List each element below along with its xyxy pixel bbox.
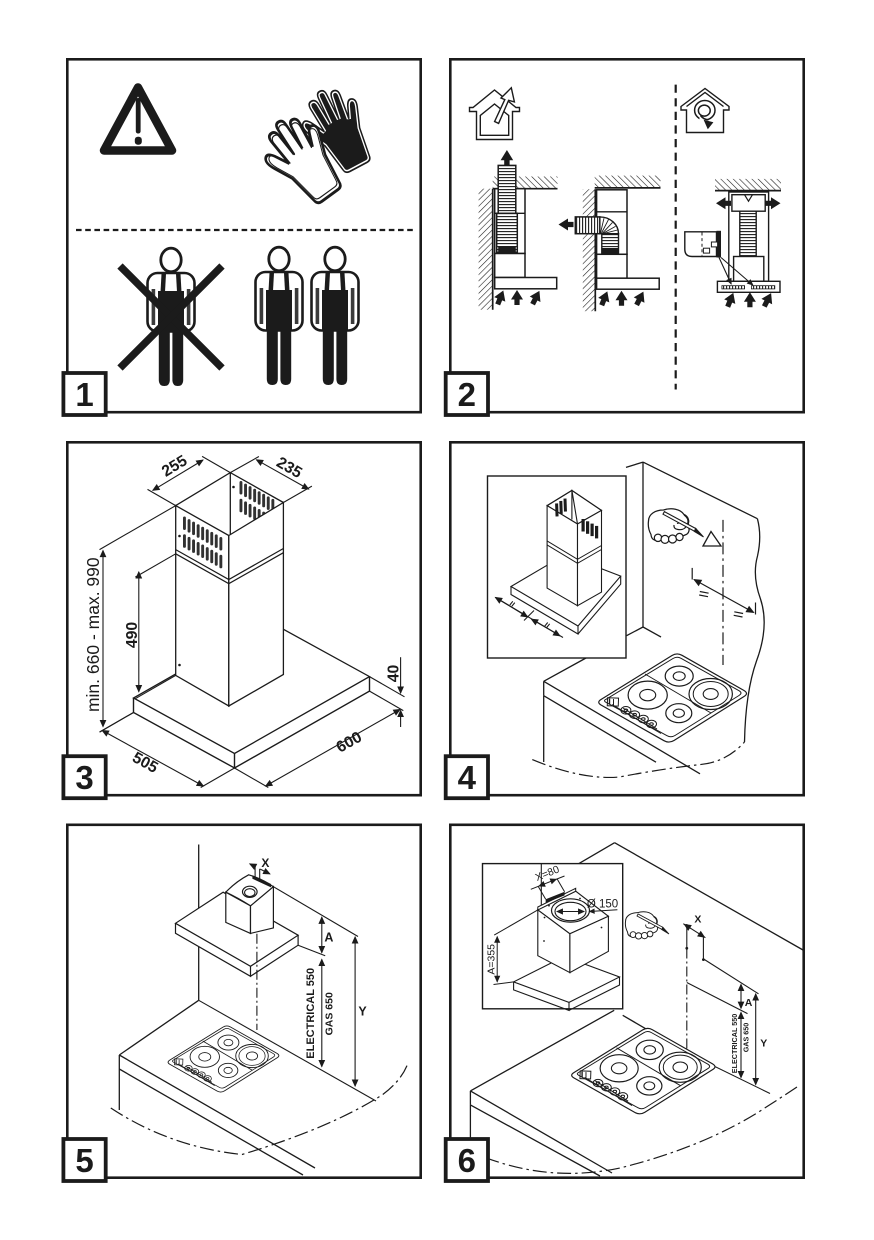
svg-text:1: 1 [75,376,93,413]
svg-text:min. 660 - max. 990: min. 660 - max. 990 [83,557,103,712]
svg-text:GAS 650: GAS 650 [742,1023,751,1053]
svg-text:GAS 650: GAS 650 [323,992,335,1035]
svg-text:490: 490 [124,622,141,649]
svg-text:4: 4 [458,759,477,796]
svg-text:ELECTRICAL 550: ELECTRICAL 550 [730,1014,739,1073]
svg-text:X: X [694,914,701,926]
svg-text:ELECTRICAL 550: ELECTRICAL 550 [305,968,317,1059]
svg-text:2: 2 [458,376,476,413]
svg-text:40: 40 [386,665,403,683]
svg-text:A: A [324,931,333,945]
svg-text:X: X [261,856,269,870]
svg-text:A: A [745,997,753,1009]
svg-text:Ø 150: Ø 150 [587,899,618,911]
svg-text:Y: Y [760,1037,767,1049]
svg-text:6: 6 [458,1142,476,1179]
svg-text:5: 5 [75,1142,93,1179]
svg-text:A=355: A=355 [486,944,498,975]
svg-text:Y: Y [358,1005,367,1019]
svg-text:3: 3 [75,759,93,796]
